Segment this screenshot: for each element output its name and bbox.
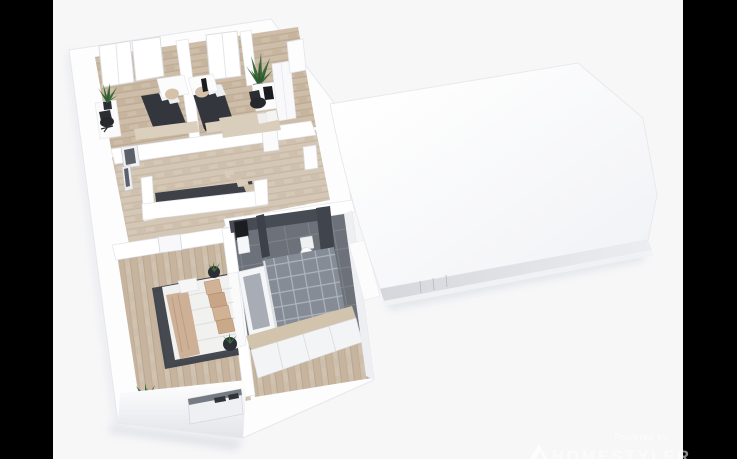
door-landing-east	[262, 130, 279, 152]
door-east-wall	[303, 145, 318, 170]
door-east	[287, 39, 306, 73]
watermark-powered-by: Powered by	[614, 432, 668, 442]
daybed-pillow	[266, 110, 278, 122]
door-bedroom1-gap	[124, 148, 136, 165]
floor-plan-render: Powered by HOMESTYLER	[0, 0, 737, 459]
door-master	[158, 234, 182, 253]
window	[132, 37, 164, 81]
watermark-brand: HOMESTYLER	[552, 448, 692, 459]
screenshot-root: Powered by HOMESTYLER	[0, 0, 737, 459]
washbasin	[237, 236, 250, 254]
